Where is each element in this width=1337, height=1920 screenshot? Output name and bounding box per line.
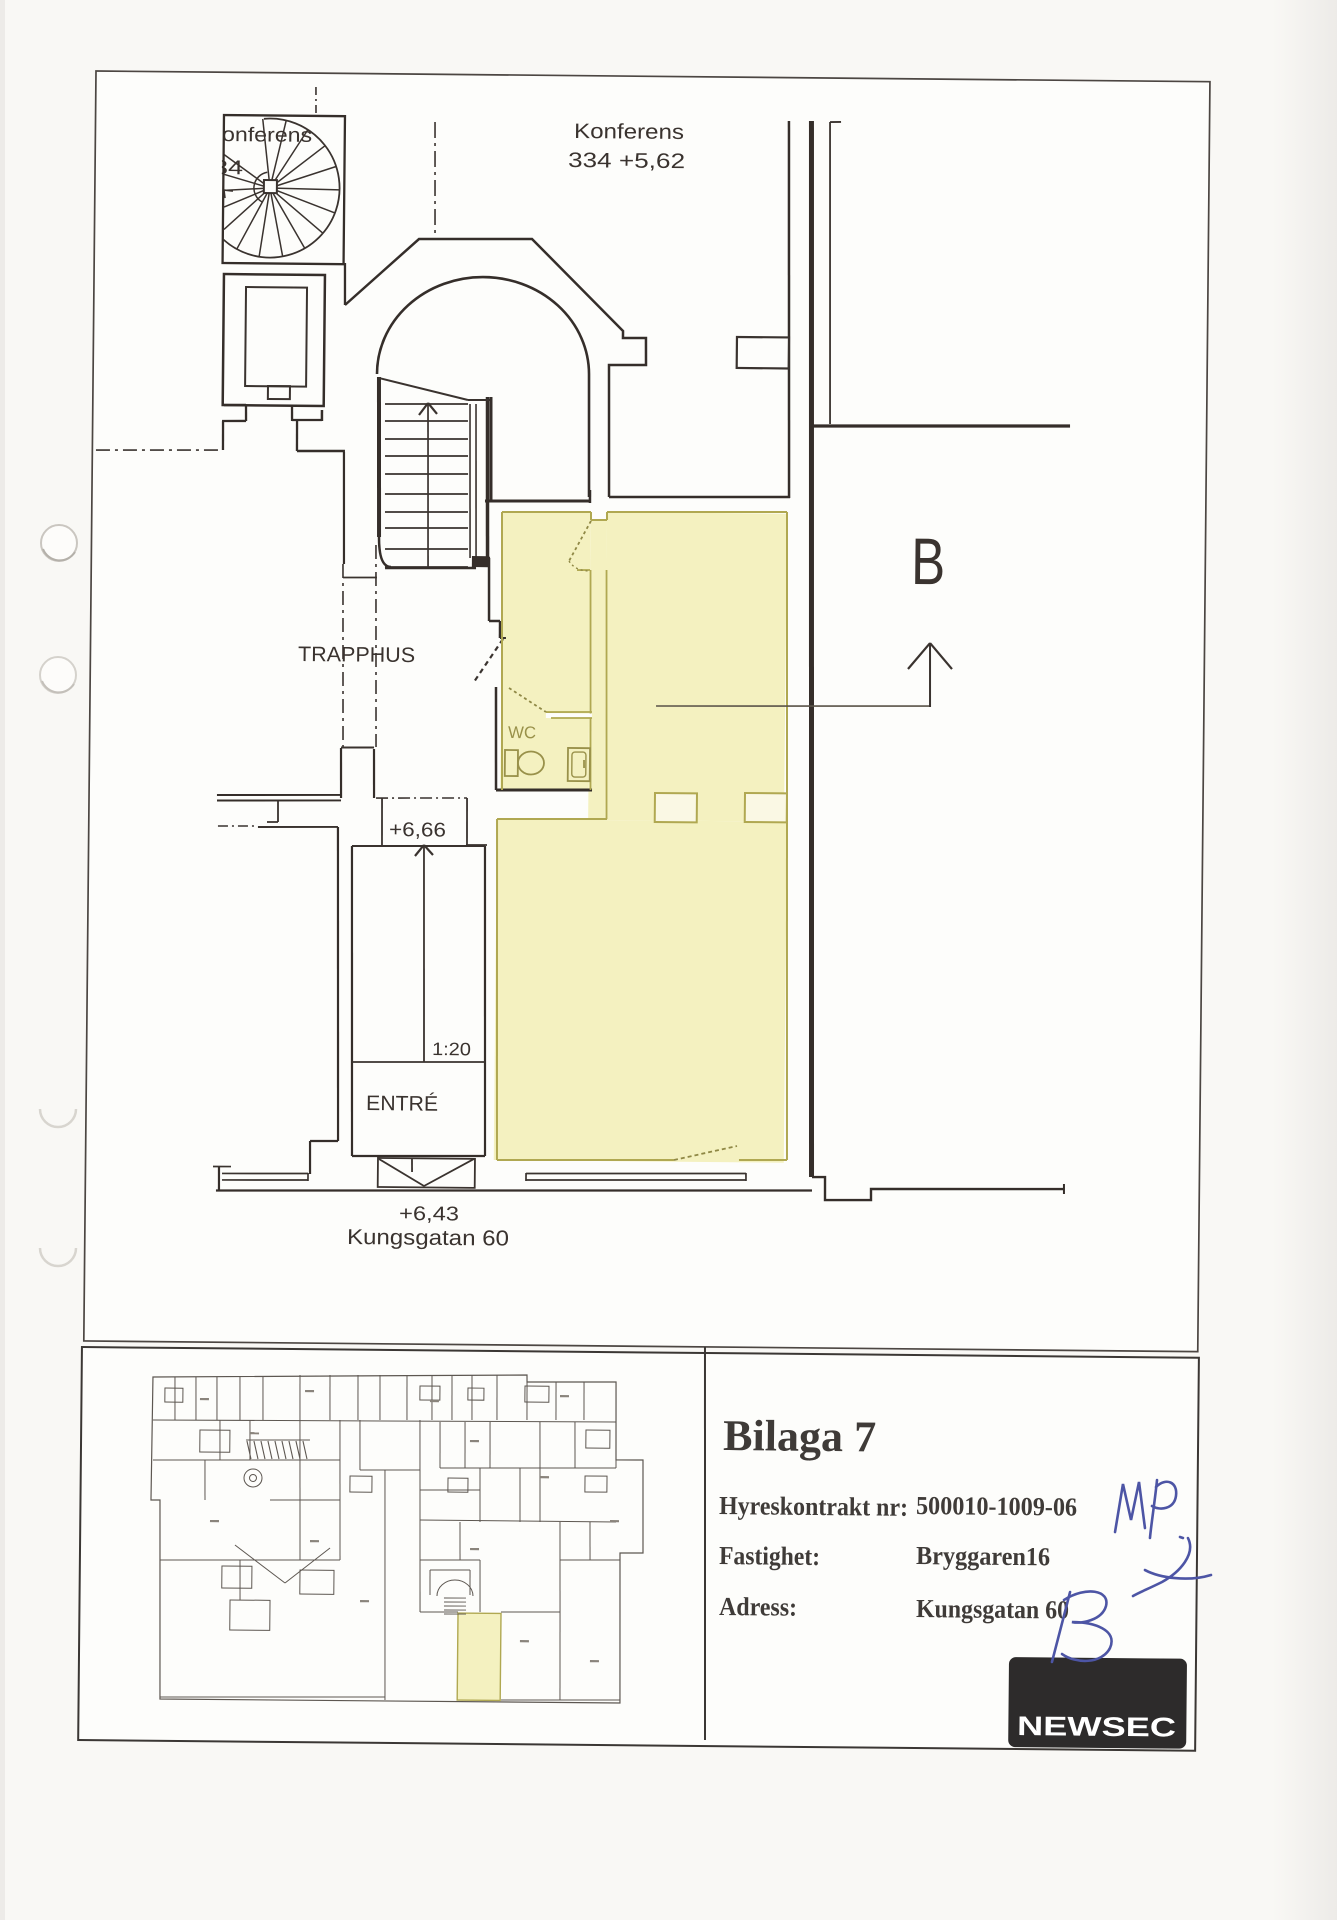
svg-text:500010-1009-06: 500010-1009-06 — [916, 1491, 1077, 1522]
svg-text:Adress:: Adress: — [719, 1592, 797, 1622]
svg-text:NEWSEC: NEWSEC — [1017, 1711, 1176, 1743]
svg-text:Bilaga 7: Bilaga 7 — [723, 1411, 876, 1461]
svg-text:+6,43: +6,43 — [399, 1203, 459, 1226]
svg-text:WC: WC — [508, 723, 536, 742]
svg-text:Fastighet:: Fastighet: — [719, 1541, 820, 1571]
svg-text:334 +5,62: 334 +5,62 — [568, 149, 685, 173]
svg-text:+6,66: +6,66 — [389, 819, 446, 842]
svg-text:Konferens: Konferens — [574, 120, 684, 144]
svg-text:Bryggaren16: Bryggaren16 — [916, 1541, 1050, 1571]
svg-text:ENTRÉ: ENTRÉ — [366, 1092, 438, 1116]
svg-text:Kungsgatan 60: Kungsgatan 60 — [916, 1594, 1069, 1624]
svg-text:1:20: 1:20 — [432, 1039, 471, 1059]
svg-text:B: B — [911, 524, 946, 598]
svg-text:Hyreskontrakt nr:: Hyreskontrakt nr: — [719, 1491, 908, 1522]
svg-text:TRAPPHUS: TRAPPHUS — [298, 643, 415, 667]
svg-text:Kungsgatan 60: Kungsgatan 60 — [347, 1225, 509, 1251]
